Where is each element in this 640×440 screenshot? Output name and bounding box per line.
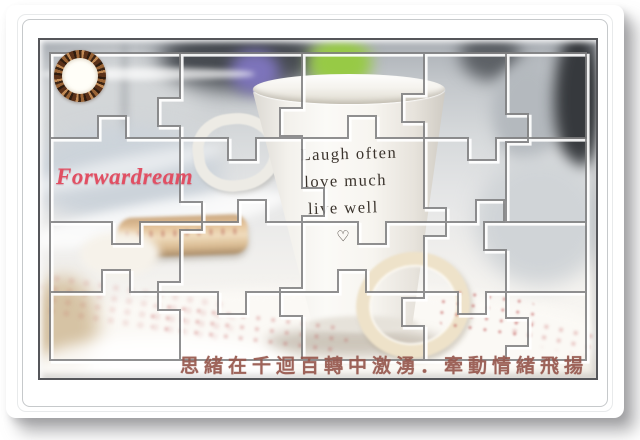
white-card: Laugh often love much live well ♡ xyxy=(6,5,624,418)
caption-text: 思緒在千迴百轉中激湧．牽動情緒飛揚 xyxy=(180,351,592,378)
photo-card-stage: Laugh often love much live well ♡ xyxy=(0,0,640,440)
bead-ring-stamp-icon xyxy=(54,50,106,102)
watermark-text: Forwardream xyxy=(56,164,236,190)
bead-ring-center xyxy=(62,58,98,94)
puzzle-grid-overlay xyxy=(40,40,596,378)
photo: Laugh often love much live well ♡ xyxy=(38,38,598,380)
